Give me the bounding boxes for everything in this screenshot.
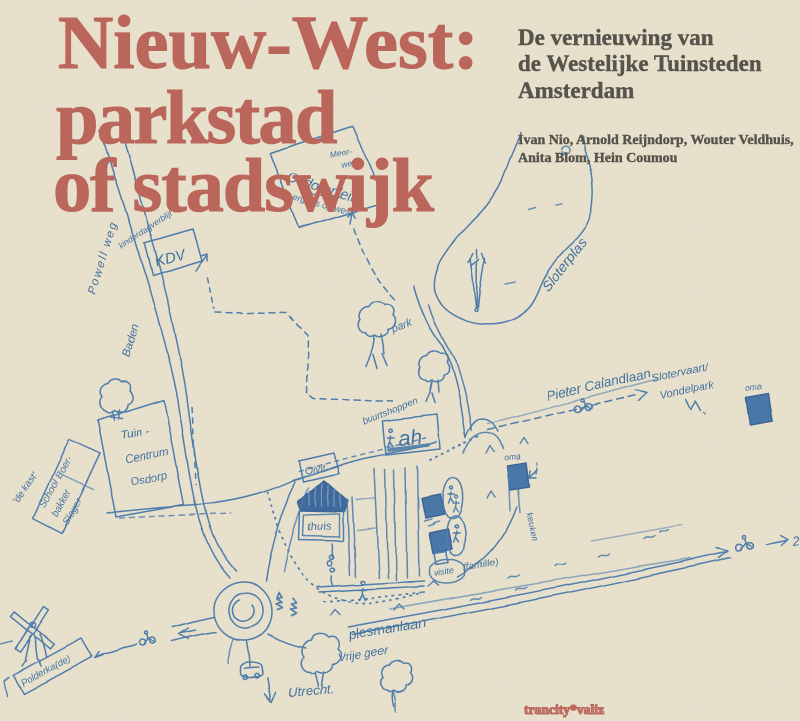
- svg-text:thuis: thuis: [307, 520, 332, 534]
- svg-text:Vrije geer: Vrije geer: [337, 644, 390, 664]
- svg-text:Utrecht.: Utrecht.: [288, 681, 335, 700]
- svg-text:Oivit: Oivit: [304, 462, 327, 477]
- svg-text:2: 2: [790, 533, 800, 549]
- svg-text:Centrum: Centrum: [124, 446, 170, 466]
- svg-text:oma: oma: [503, 451, 521, 463]
- svg-text:Tuin -: Tuin -: [119, 426, 149, 443]
- svg-text:Osdorp: Osdorp: [129, 469, 169, 487]
- svg-text:'de kast': 'de kast': [10, 470, 40, 507]
- svg-text:plesmanlaan: plesmanlaan: [347, 615, 426, 642]
- svg-text:Vondelpark: Vondelpark: [659, 380, 716, 402]
- svg-text:(famille): (famille): [463, 557, 500, 574]
- svg-text:Baden: Baden: [120, 323, 141, 358]
- svg-text:oma: oma: [745, 380, 763, 393]
- svg-text:keuken: keuken: [525, 511, 541, 541]
- svg-text:visite: visite: [433, 565, 455, 578]
- svg-text:Polderka(de): Polderka(de): [19, 653, 72, 688]
- svg-text:Sloterplas: Sloterplas: [539, 235, 590, 294]
- svg-text:park: park: [389, 316, 415, 335]
- svg-text:Powell weg: Powell weg: [86, 220, 120, 296]
